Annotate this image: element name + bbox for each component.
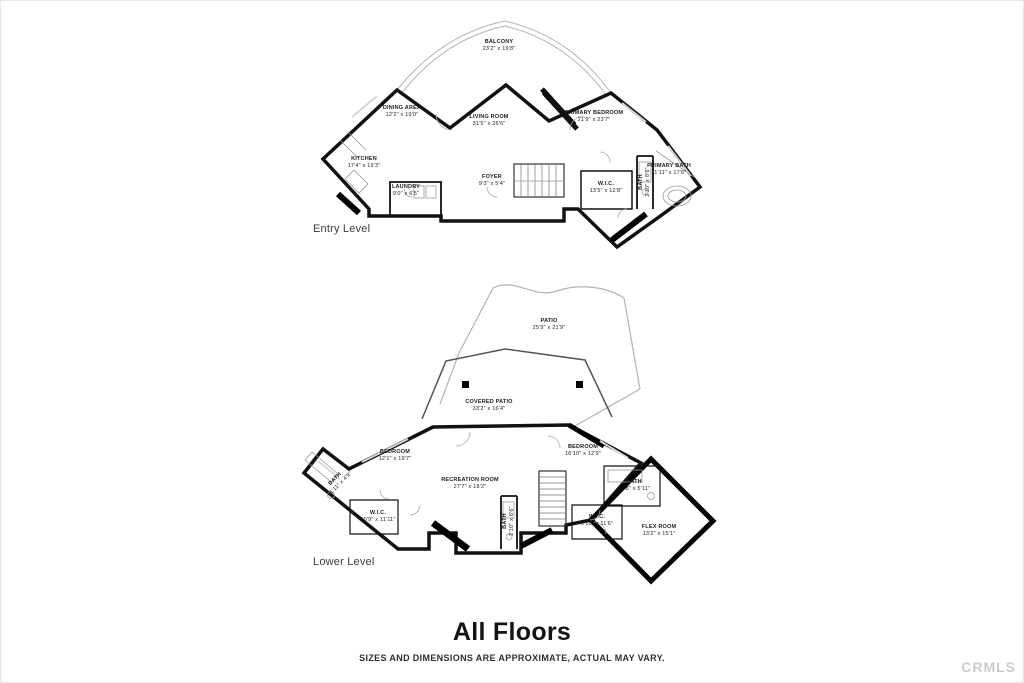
room-label-bath-right: BATH 12'8" x 5'11" [618,479,650,493]
room-label-kitchen: KITCHEN 17'4" x 19'3" [348,156,381,170]
room-label-balcony: BALCONY 23'2" x 19'8" [483,39,516,53]
room-label-dining-area: DINING AREA 12'2" x 19'0" [383,105,421,119]
room-label-wic-entry: W.I.C. 13'5" x 12'8" [590,181,623,195]
room-label-living-room: LIVING ROOM 31'5" x 26'6" [469,114,508,128]
page-title: All Floors [0,618,1024,647]
patio-post-icon [576,381,583,388]
floorplan-drawing [0,0,1024,683]
floorplan-page: BALCONY 23'2" x 19'8" DINING AREA 12'2" … [0,0,1024,683]
patio-post-icon [462,381,469,388]
entry-level-plan-drawing [323,21,700,247]
covered-patio-outline [422,349,612,419]
room-label-primary-bath: PRIMARY BATH 11'11" x 17'6" [647,163,691,177]
lower-level-label: Lower Level [313,556,375,568]
disclaimer-text: SIZES AND DIMENSIONS ARE APPROXIMATE, AC… [0,653,1024,663]
room-label-bath-middle: BATH 2'10" x 8'6" [502,506,516,536]
room-label-recreation-room: RECREATION ROOM 27'7" x 18'2" [441,477,499,491]
crmls-watermark: CRMLS [961,659,1016,675]
room-label-bedroom-right: BEDROOM 16'10" x 12'9" [565,444,601,458]
room-label-foyer: FOYER 9'3" x 5'4" [479,174,505,188]
room-label-primary-bedroom: PRIMARY BEDROOM 21'9" x 23'7" [565,110,623,124]
room-label-laundry: LAUNDRY 9'0" x 6'5" [392,184,420,198]
room-label-covered-patio: COVERED PATIO 33'2" x 16'4" [465,399,512,413]
entry-level-label: Entry Level [313,223,370,235]
room-label-patio: PATIO 25'9" x 21'9" [533,318,566,332]
room-label-flex-room: FLEX ROOM 13'2" x 15'1" [642,524,677,538]
room-label-bedroom-left: BEDROOM 12'1" x 19'7" [379,449,412,463]
room-label-wic-right: W.I.C. 9'10" x 11'6" [581,514,613,528]
room-label-wic-left: W.I.C. 10'9" x 11'11" [360,510,395,524]
